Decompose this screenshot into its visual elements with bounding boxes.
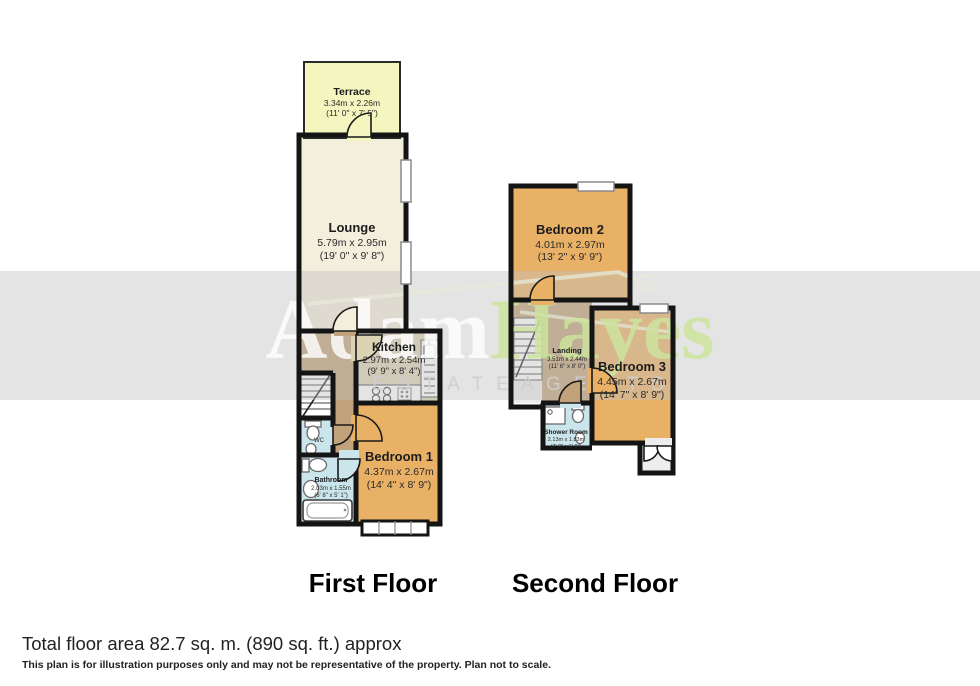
- bedroom1-metric: 4.37m x 2.67m: [364, 466, 434, 478]
- first-floor-title: First Floor: [309, 568, 438, 598]
- terrace-label: Terrace: [333, 86, 370, 98]
- kitchen-label: Kitchen: [372, 340, 416, 354]
- watermark: Adam Hayes E S T A T E A G E N T S: [0, 271, 980, 400]
- bathroom-imperial: (6' 8" x 5' 1"): [314, 493, 348, 499]
- lounge-label: Lounge: [329, 220, 376, 235]
- terrace-imperial: (11' 0" x 7' 5"): [326, 108, 378, 118]
- bathroom-metric: 2.03m x 1.55m: [311, 486, 351, 492]
- lounge-window-lower: [401, 242, 411, 284]
- bedroom2-label: Bedroom 2: [536, 222, 604, 237]
- bedroom3-metric: 4.45m x 2.67m: [597, 376, 667, 388]
- bedroom1-bay-window: [362, 521, 428, 535]
- lounge-window-upper: [401, 160, 411, 202]
- shower-label: Shower Room: [544, 429, 588, 436]
- kitchen-imperial: (9' 9" x 8' 4"): [367, 366, 420, 377]
- shower-imperial: (7' 0" x 6' 0"): [551, 444, 582, 450]
- lounge-metric: 5.79m x 2.95m: [317, 237, 387, 249]
- bathroom-label: Bathroom: [314, 477, 347, 484]
- floorplan-page: Adam Hayes E S T A T E A G E N T S: [0, 0, 980, 686]
- bedroom2-metric: 4.01m x 2.97m: [535, 239, 605, 251]
- terrace-metric: 3.34m x 2.26m: [324, 98, 380, 108]
- landing-label: Landing: [552, 346, 582, 355]
- bedroom2-window: [578, 182, 614, 191]
- total-area-text: Total floor area 82.7 sq. m. (890 sq. ft…: [22, 633, 402, 654]
- kitchen-metric: 2.97m x 2.54m: [363, 355, 426, 366]
- bedroom3-label: Bedroom 3: [598, 359, 666, 374]
- shower-tray: [545, 407, 565, 424]
- bedroom2-imperial: (13' 2" x 9' 9"): [538, 251, 603, 263]
- shower-metric: 2.13m x 1.83m: [548, 437, 585, 443]
- floorplan-canvas: Adam Hayes E S T A T E A G E N T S: [0, 0, 980, 686]
- bedroom1-label: Bedroom 1: [365, 449, 433, 464]
- bathroom-toilet: [302, 459, 327, 473]
- disclaimer-text: This plan is for illustration purposes o…: [22, 659, 551, 671]
- bedroom1-imperial: (14' 4" x 8' 9"): [367, 479, 432, 491]
- landing-metric: 3.51m x 2.44m: [547, 357, 587, 363]
- bedroom3-window: [640, 304, 668, 313]
- wc-label: WC: [314, 438, 325, 444]
- bathtub: [303, 500, 352, 521]
- landing-imperial: (11' 6" x 8' 0"): [549, 364, 585, 370]
- lounge-imperial: (19' 0" x 9' 8"): [320, 250, 385, 262]
- bedroom3-imperial: (14' 7" x 8' 9"): [600, 389, 665, 401]
- second-floor-title: Second Floor: [512, 568, 678, 598]
